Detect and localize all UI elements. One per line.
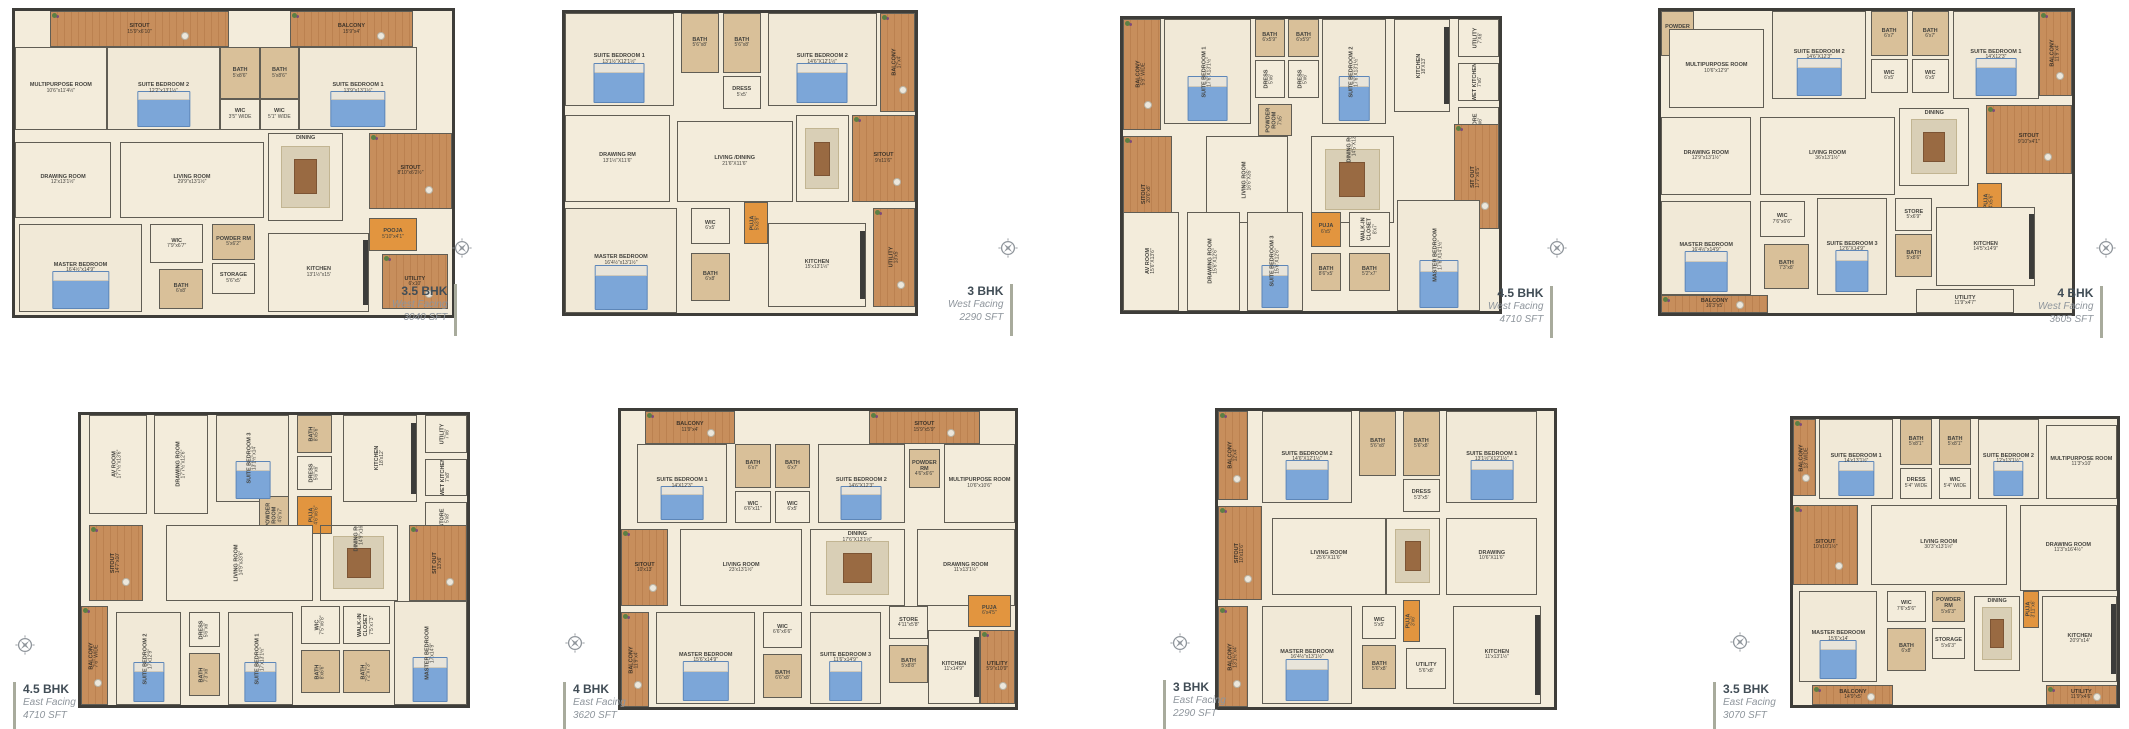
room-dimensions: 11'3"x10'	[2050, 462, 2112, 468]
room-name: SUITE BEDROOM 3	[1827, 241, 1878, 247]
room-name: POWDER RM	[216, 236, 251, 242]
room-label: DRESS5'3"x5'	[1412, 489, 1431, 501]
room-dimensions: 10'x13'	[635, 568, 655, 574]
room-dimensions: 17'x4'	[898, 49, 904, 76]
room-name: WALK-IN CLOSET	[357, 606, 370, 644]
room-dimensions: 11'9"x4'6"	[2071, 695, 2093, 701]
plan-label-text: 3.5 BHKWest Facing3040 SFT	[392, 284, 447, 336]
room: UTILITY11'9"x4'7"	[1916, 289, 2015, 313]
room: DRAWING ROOM12'x13'1½"	[15, 142, 111, 218]
room-label: WIC6'6"x6'6"	[773, 624, 792, 636]
room: BALCONY16'3"x5'	[1661, 295, 1768, 313]
room-name: BATH	[314, 664, 320, 679]
bed	[797, 63, 848, 103]
room: BATH5'6"x8'	[1359, 411, 1396, 476]
floor-plan-plan-4: POWDER ROOM4'3"x7'MULTIPURPOSE ROOM10'6"…	[1658, 8, 2075, 316]
room-name: BATH	[233, 67, 248, 73]
room-name: SUITE BEDROOM 1	[594, 53, 645, 59]
room: POWDER RM5'x6'3"	[1932, 591, 1964, 622]
room-name: PUJA	[982, 605, 997, 611]
room-label: DINING	[1987, 597, 2006, 604]
room-name: WIC	[1925, 70, 1936, 76]
bed	[1838, 461, 1873, 496]
room: BATH6'x7'	[775, 444, 810, 488]
room: BATH6'x8'	[1887, 628, 1926, 671]
room-dimensions: 3'5" WIDE	[229, 115, 252, 121]
room: BATH5'6"x8'	[1403, 411, 1440, 476]
plan-area-sft: 3605 SFT	[2038, 313, 2093, 326]
room: STORE4'11"x5'8"	[889, 606, 928, 639]
room-label: PUJA3'x6'	[1405, 614, 1417, 629]
room-label: BALCONY11'9"x4'	[2050, 40, 2062, 67]
plan-label-text: 4 BHKWest Facing3605 SFT	[2038, 286, 2093, 338]
room-name: BALCONY	[1798, 444, 1804, 471]
plan-label-plan-5: 4.5 BHKEast Facing4710 SFT	[13, 682, 76, 729]
room-dimensions: 20'6"x8'	[1148, 184, 1154, 204]
room: SUITE BEDROOM 214'6"X12'1½"	[768, 13, 877, 106]
room-dimensions: 5'x6'3"	[1933, 610, 1963, 616]
room-label: BATH6'x8'	[703, 271, 718, 283]
room-name: BALCONY	[1701, 298, 1728, 304]
room-dimensions: 7'x5'	[1279, 104, 1285, 136]
room-label: MULTIPURPOSE ROOM10'6"x12'9"	[1686, 62, 1748, 74]
room-name: BATH	[1779, 260, 1794, 266]
room-name: UTILITY	[1472, 28, 1478, 49]
plan-bhk: 3.5 BHK	[392, 284, 447, 298]
room-dimensions: 3'11"x6'	[2031, 601, 2037, 618]
room-name: MULTIPURPOSE ROOM	[949, 477, 1011, 483]
room-dimensions: 6'x7'	[1882, 34, 1897, 40]
room-label: WIC3'5" WIDE	[229, 108, 252, 120]
room-label: BATH6'x8'	[174, 283, 189, 295]
room: UTILITY5'6"x8'	[1406, 648, 1446, 689]
room-name: MULTIPURPOSE ROOM	[2050, 456, 2112, 462]
room-name: BATH	[1362, 266, 1377, 272]
room-name: DINING	[843, 531, 873, 537]
room-name: DRESS	[1297, 69, 1303, 88]
room: SUITE BEDROOM 114'X12'3"	[637, 444, 728, 524]
room-name: MASTER BEDROOM	[679, 652, 732, 658]
room-dimensions: 7'5"x6'8"	[321, 616, 327, 635]
room: LIVING ROOM23'x13'1½"	[680, 529, 802, 606]
plan-area-sft: 3040 SFT	[392, 311, 447, 324]
room-name: SITOUT	[873, 152, 893, 158]
room: DRAWING RM13'1½"X11'6"	[565, 115, 670, 202]
room-name: WIC	[744, 501, 762, 507]
room-dimensions: 7'6"x5'6"	[1897, 607, 1916, 613]
room-name: WIC	[773, 624, 792, 630]
compass-icon	[14, 634, 36, 656]
room-dimensions: 7'x6'	[446, 423, 452, 444]
room-name: WIC	[1897, 600, 1916, 606]
room-dimensions: 7'x8'	[446, 459, 452, 497]
room: UTILITY7'x6'	[425, 415, 467, 453]
room-name: PUJA	[750, 216, 756, 231]
room-label: KITCHEN11'x13'1½"	[1485, 649, 1509, 661]
room-dimensions: 6'x8'	[1899, 649, 1914, 655]
room-name: SUITE BEDROOM 2	[836, 477, 887, 483]
room-dimensions: 5'6"x8'	[692, 43, 707, 49]
room: SUITE BEDROOM 315'6"X12'6"	[1247, 212, 1303, 311]
room-dimensions: 5'x5'	[1374, 623, 1385, 629]
room-name: DRAWING	[1479, 550, 1506, 556]
room: BALCONY12'x4'	[1218, 411, 1248, 500]
compass-icon	[1546, 237, 1568, 259]
room-label: BATH6'x5'9"	[1262, 32, 1277, 44]
room-dimensions: 6'x5'	[1319, 230, 1334, 236]
room-label: MULTIPURPOSE ROOM10'6"x10'6"	[949, 477, 1011, 489]
room: SITOUT14'7"x10'	[89, 525, 143, 600]
room	[1386, 518, 1440, 595]
floor-plan-plan-7: BALCONY12'x4'SITOUT10'x11'6"BALCONY13'1½…	[1215, 408, 1557, 710]
room-label: BALCONY17'x4'	[891, 49, 903, 76]
room-dimensions: 10'6"X11'6"	[1479, 556, 1506, 562]
room-name: BATH	[308, 426, 314, 441]
room-name: DRESS	[1412, 489, 1431, 495]
room-dimensions: 8'x6'6"	[321, 664, 327, 679]
room-name: POWDER RM	[1933, 597, 1963, 610]
room-label: BATH5'6"x8'	[692, 37, 707, 49]
room-name: KITCHEN	[374, 446, 380, 470]
room-label: DRESS5'6"x6'	[308, 464, 320, 483]
compass-icon	[1169, 632, 1191, 654]
bed	[829, 661, 863, 701]
room-label: LIVING ROOM14'9"x33'6"	[233, 544, 245, 581]
room-dimensions: 5'x8'1"	[1948, 442, 1963, 448]
room-name: SITOUT	[110, 553, 116, 573]
room-label: PUJA5'x3'9"	[750, 216, 762, 231]
room: DRAWING ROOM12'9"x13'1½"	[1661, 117, 1751, 196]
room-name: WIC	[229, 108, 252, 114]
room-label: WIC7'9"x6'7"	[167, 238, 186, 250]
room: WIC3'5" WIDE	[220, 99, 259, 129]
room-dimensions: 11'9"x4'	[676, 428, 703, 434]
room: LIVING ROOM25'6"X11'6"	[1272, 518, 1386, 595]
room-label: BALCONY13'1½"x4'	[1227, 643, 1239, 670]
room: SUITE BEDROOM 113'9"x13'1½"	[299, 47, 417, 129]
room-label: PUJA3'11"x6'	[2025, 601, 2037, 618]
room-label: BALCONY5'9" WIDE	[1136, 61, 1148, 88]
room-name: BALCONY	[676, 421, 703, 427]
room-dimensions: 17'7½"x12'6"	[182, 442, 188, 487]
room-label: BATH5'6"x8'	[1414, 438, 1429, 450]
room-dimensions: 18'x12'	[380, 446, 386, 470]
room-label: BATH5'6"x8'	[1370, 438, 1385, 450]
room-dimensions: 15'6"X12'6"	[1213, 239, 1219, 284]
room-name: WET KITCHEN	[440, 459, 446, 497]
plan-label-plan-6: 4 BHKEast Facing3620 SFT	[563, 682, 626, 729]
room-label: AV ROOM17'7½"x13'6"	[112, 450, 124, 479]
bed	[1994, 461, 2023, 496]
room: DRAWING ROOM15'6"X12'6"	[1187, 212, 1240, 311]
room-name: KITCHEN	[306, 266, 330, 272]
room-label: WIC5'x5'	[1374, 617, 1385, 629]
room-name: DRAWING ROOM	[943, 562, 988, 568]
room: WALK-IN CLOSET7'5"x7'3"	[343, 606, 389, 644]
room-dimensions: 5'x8'1"	[1909, 442, 1924, 448]
room-label: BATH5'x8'6"	[272, 67, 287, 79]
room-name: BATH	[1372, 661, 1387, 667]
plan-label-text: 3 BHKEast Facing2290 SFT	[1173, 680, 1226, 729]
plan-label-text: 3.5 BHKEast Facing3070 SFT	[1723, 682, 1776, 729]
room-name: LIVING /DINING	[714, 155, 755, 161]
room-name: BATH	[746, 460, 761, 466]
room-name: BATH	[1923, 28, 1938, 34]
room-dimensions: 5'9" WIDE	[1142, 61, 1148, 88]
room-label: WIC7'6"x5'6"	[1897, 600, 1916, 612]
room-label: SITOUT8'10"x6'2½"	[397, 165, 423, 177]
room-label: UTILITY11'9"x4'6"	[2071, 689, 2093, 701]
room-name: BALCONY	[1227, 442, 1233, 469]
room-name: POWDER ROOM	[1266, 104, 1279, 136]
room-dimensions: 11'9"x4'	[2056, 40, 2062, 67]
room-dimensions: 4'6"x6'6"	[910, 472, 940, 478]
room: DRESS5'x6'	[1288, 60, 1318, 98]
room-dimensions: 6'x7'	[746, 466, 761, 472]
room-dimensions: 12'x4'	[1233, 442, 1239, 469]
room-label: UTILITY7'X6'	[1472, 28, 1484, 49]
room: BALCONY14'9"x5'	[1812, 685, 1893, 705]
room-dimensions: 11'3"x16'4½"	[2046, 548, 2091, 554]
room: WET KITCHEN7'x6'	[1458, 63, 1499, 101]
room-dimensions: 5'6"x8'	[1416, 669, 1437, 675]
room: BATH7'2"x7'3"	[343, 650, 389, 694]
dining-table	[347, 548, 371, 577]
room-name: STORE	[898, 617, 920, 623]
room: DINING	[1974, 596, 2019, 670]
room-name: DINING	[1925, 110, 1944, 116]
plan-area-sft: 4710 SFT	[23, 709, 76, 722]
bed	[594, 63, 645, 103]
room-dimensions: 5'x8'8"	[901, 664, 916, 670]
room-label: LIVING ROOM36'x13'1½"	[1809, 150, 1846, 162]
room-name: STORE	[1904, 209, 1923, 215]
room-label: DRESS5'x6'	[1297, 69, 1309, 88]
room: SUITE BEDROOM 117'6"X13'1½"	[1164, 19, 1250, 124]
room: SUITE BEDROOM 114'x13'1½"	[1819, 419, 1894, 499]
room: WALK-IN CLOSET8'x7'	[1349, 212, 1390, 247]
plan-label-text: 4 BHKEast Facing3620 SFT	[573, 682, 626, 729]
room-dimensions: 13'1½"x4'	[1233, 643, 1239, 670]
room: KITCHEN15'x13'1½"	[768, 223, 866, 307]
room-label: BALCONY11'9"x4'	[676, 421, 703, 433]
plan-area-sft: 3620 SFT	[573, 709, 626, 722]
room: WIC6'x5'	[691, 208, 730, 244]
room-dimensions: 5'x8'6"	[233, 74, 248, 80]
room-name: KITCHEN	[1416, 53, 1422, 77]
room: BATH8'6"x5'	[1311, 253, 1341, 291]
room: DRESS5'x5'	[723, 76, 762, 109]
room-name: DRESS	[1264, 69, 1270, 88]
room-label: BATH5'x8'8"	[901, 658, 916, 670]
room: DRESS5'6"x6'	[297, 456, 332, 491]
plan-facing: West Facing	[948, 298, 1003, 311]
room-label: WIC6'x5'	[705, 220, 716, 232]
label-divider-bar	[13, 682, 16, 729]
room-dimensions: 29'9"x13'1½"	[173, 180, 210, 186]
room: BALCONY5'9" WIDE	[1123, 19, 1161, 130]
room-dimensions: 5'x8'6"	[1906, 256, 1921, 262]
room-label: MULTIPURPOSE ROOM10'6"x11'4½"	[30, 82, 92, 94]
room-name: BATH	[703, 271, 718, 277]
room-name: KITCHEN	[2068, 633, 2092, 639]
room: MULTIPURPOSE ROOM10'6"x10'6"	[944, 444, 1015, 524]
room-dimensions: 4'11"x5'8"	[898, 623, 920, 629]
room-name: SITOUT	[913, 421, 935, 427]
room-dimensions: 5'x6'	[1270, 69, 1276, 88]
room-dimensions: 13'1½"x15'	[306, 273, 330, 279]
plan-area-sft: 2290 SFT	[948, 311, 1003, 324]
room-dimensions: 15'9"x4'	[338, 30, 365, 36]
room-name: WIC	[167, 238, 186, 244]
room-dimensions: 11'x13'1½"	[1485, 655, 1509, 661]
room: SUITE BEDROOM 214'6"X12'3"	[1772, 11, 1867, 99]
room: PUJA3'x6'	[1403, 600, 1420, 641]
floor-plan-plan-8: BALCONY13' WIDESUITE BEDROOM 114'x13'1½"…	[1790, 416, 2120, 708]
room-label: WET KITCHEN7'x6'	[1472, 63, 1484, 101]
room-dimensions: 12'x13'1½"	[40, 180, 85, 186]
room-dimensions: 11'x13'1½"	[943, 568, 988, 574]
room: SUITE BEDROOM 212'x13'1½"	[1978, 419, 2040, 499]
room-dimensions: 6'x5'	[1884, 76, 1895, 82]
room-label: BALCONY13' WIDE	[1798, 444, 1810, 471]
room: WIC5'x5'	[1362, 606, 1396, 639]
room: SITOUT10'x10'1½"	[1793, 505, 1858, 585]
bed	[1685, 251, 1728, 291]
bed	[841, 486, 882, 521]
room: SUITE BEDROOM 212'2"x13'1½"	[107, 47, 221, 129]
compass-icon	[997, 237, 1019, 259]
room-label: WIC6'x5'	[1884, 70, 1895, 82]
room-label: BATH6'x7'	[746, 460, 761, 472]
room-name: DRAWING ROOM	[175, 442, 181, 487]
room-label: LIVING ROOM30'3"x13'1½"	[1920, 539, 1957, 551]
room-dimensions: 25'6"X11'6"	[1310, 556, 1347, 562]
plan-facing: East Facing	[23, 696, 76, 709]
dining-table	[814, 142, 830, 176]
room: POWDER RM4'6"x6'6"	[909, 449, 941, 487]
room: SUITE BEDROOM 217'6"X13'1½"	[1322, 19, 1386, 124]
room: BATH6'x7'	[1912, 11, 1949, 56]
room: SUITE BEDROOM 313'1½"x14'	[216, 415, 289, 502]
room-name: SITOUT	[2018, 133, 2040, 139]
plan-facing: East Facing	[1723, 696, 1776, 709]
floor-plan-plan-5: AV ROOM17'7½"x13'6"DRAWING ROOM17'7½"x12…	[78, 412, 470, 708]
room-label: UTILITY11'9"x4'7"	[1954, 295, 1976, 307]
room-name: BATH	[1906, 250, 1921, 256]
room-dimensions: 30'3"x13'1½"	[1920, 545, 1957, 551]
compass-icon	[1729, 631, 1751, 653]
room-dimensions: 36'x13'1½"	[1809, 156, 1846, 162]
room: LIVING ROOM16'6"X35'	[1206, 136, 1289, 224]
room-dimensions: 7'2"x7'3"	[367, 662, 373, 681]
room-label: SITOUT20'6"x8'	[1141, 184, 1153, 204]
room-dimensions: 8'x5'6"	[315, 426, 321, 441]
room-dimensions: 10'x10'1½"	[1813, 545, 1837, 551]
room: LIVING ROOM36'x13'1½"	[1760, 117, 1896, 196]
room: WIC6'6"x11"	[735, 491, 770, 524]
plan-bhk: 4 BHK	[2038, 286, 2093, 300]
room: DINING	[268, 133, 342, 221]
room-name: PUJA	[1319, 223, 1334, 229]
room-name: KITCHEN	[942, 661, 966, 667]
room: SUITE BEDROOM 113'1½"X12'1½"	[1446, 411, 1537, 503]
room-name: LIVING ROOM	[173, 174, 210, 180]
room-name: SUITE BEDROOM 2	[797, 53, 848, 59]
room-label: SITOUT10'x11'6"	[1234, 543, 1246, 563]
room-dimensions: 13' WIDE	[1805, 444, 1811, 471]
room: BATH5'x8'1"	[1939, 419, 1971, 465]
room-label: BALCONY7'6" WIDE	[88, 642, 100, 669]
bed	[1835, 250, 1868, 292]
room-name: UTILITY	[1954, 295, 1976, 301]
room: DRAWING10'6"X11'6"	[1446, 518, 1537, 595]
room-label: WET KITCHEN7'x8'	[440, 459, 452, 497]
room-label: DRAWING10'6"X11'6"	[1479, 550, 1506, 562]
room-name: SUITE BEDROOM 1	[333, 82, 384, 88]
room-name: DRAWING ROOM	[1684, 150, 1729, 156]
room-name: SIT OUT	[432, 552, 438, 574]
room-label: BATH5'x8'6"	[233, 67, 248, 79]
room: SUITE BEDROOM 113'1½"X12'1½"	[565, 13, 674, 106]
room: SITOUT10'x11'6"	[1218, 506, 1262, 601]
room-name: UTILITY	[440, 423, 446, 444]
bed	[245, 662, 276, 702]
room-dimensions: 15'x13'1½"	[805, 265, 829, 271]
room-label: BATH8'x6'6"	[314, 664, 326, 679]
room-label: BATH8'6"x5'	[1319, 266, 1334, 278]
room-label: BALCONY11'9"x4'	[629, 646, 641, 673]
room: BALCONY15'9"x4'	[290, 11, 412, 47]
room: STORAGE5'x6'3"	[1932, 628, 1964, 659]
room-name: SUITE BEDROOM 2	[1282, 451, 1333, 457]
room-name: DRESS	[308, 464, 314, 483]
room-name: BATH	[692, 37, 707, 43]
room: KITCHEN14'5"x14'9"	[1936, 207, 2035, 286]
room: SITOUT10'x13'	[621, 529, 668, 606]
room-label: STORAGE5'6"x5'	[220, 272, 247, 284]
room-label: BATH5'x8'1"	[1909, 436, 1924, 448]
plan-facing: West Facing	[392, 298, 447, 311]
room-name: LIVING ROOM	[1920, 539, 1957, 545]
room: SITOUT8'10"x6'2½"	[369, 133, 452, 209]
plan-facing: East Facing	[573, 696, 626, 709]
room-name: BATH	[1296, 32, 1311, 38]
room: BALCONY11'9"x4'	[645, 411, 736, 444]
label-divider-bar	[1550, 286, 1553, 338]
plan-area-sft: 3070 SFT	[1723, 709, 1776, 722]
room-dimensions: 6'6"x6'6"	[773, 630, 792, 636]
room-name: BALCONY	[88, 642, 94, 669]
bed	[52, 271, 109, 309]
room: BATH7'3"x6'	[189, 653, 220, 697]
room-label: WALK-IN CLOSET8'x7'	[1360, 212, 1378, 247]
room-name: DRAWING ROOM	[40, 174, 85, 180]
room-dimensions: 7'3"x6'	[205, 667, 211, 682]
room-name: WIC	[1773, 213, 1792, 219]
room: DRAWING ROOM17'7½"x12'6"	[154, 415, 208, 514]
room-name: MASTER BEDROOM	[594, 254, 647, 260]
room-name: SITOUT	[1813, 539, 1837, 545]
room: MASTER BEDROOM16'4½"x14'9"	[19, 224, 141, 312]
room-label: DRESS5'6"x6'	[198, 620, 210, 639]
room-dimensions: 5'6"x8'	[1414, 444, 1429, 450]
room-dimensions: 7'6" WIDE	[95, 642, 101, 669]
bed	[595, 265, 648, 310]
room-name: BATH	[272, 67, 287, 73]
room-dimensions: 5'2"x7'	[1362, 272, 1377, 278]
room: POWDER RM5'x6'2"	[212, 224, 256, 260]
